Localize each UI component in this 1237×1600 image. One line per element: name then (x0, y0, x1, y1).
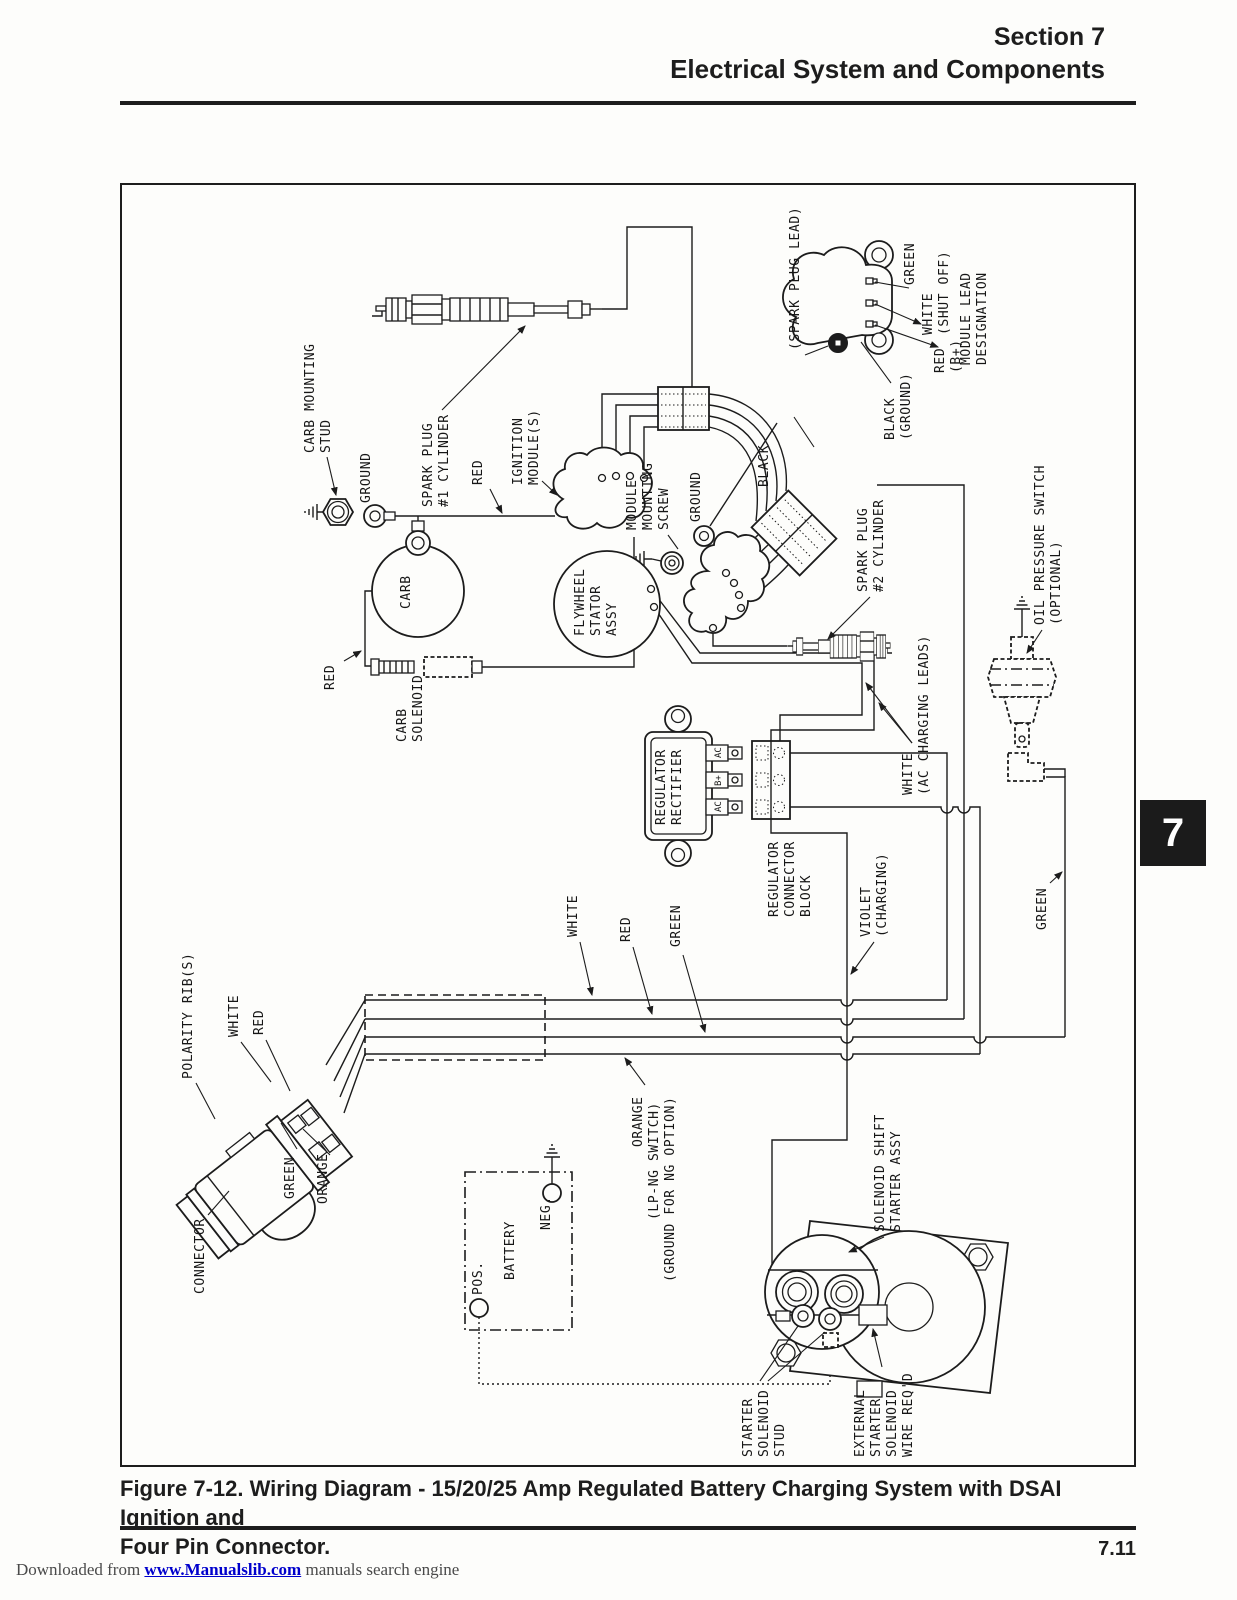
label-orange-conn: ORANGE (316, 1153, 331, 1204)
label-terminal-ac-bottom: AC (714, 801, 724, 812)
ground-ring-terminal-left (364, 505, 395, 527)
carb-solenoid (371, 657, 482, 677)
label-green-conn: GREEN (283, 1157, 298, 1199)
chapter-tab: 7 (1140, 800, 1206, 866)
label-carb-solenoid: CARB (395, 708, 410, 742)
label-flywheel-stator: FLYWHEEL (573, 569, 588, 636)
label-solenoid-shift2: STARTER ASSY (889, 1131, 904, 1232)
label-module-lead-designation: MODULE LEAD (959, 272, 974, 365)
label-module-mounting-screw: MODULE (625, 479, 640, 530)
label-carb: CARB (399, 575, 414, 609)
harness-dashed-box (365, 995, 545, 1060)
label-carb-mounting-stud: CARB MOUNTING (303, 343, 318, 453)
label-red-left: RED (323, 665, 338, 690)
label-battery-neg: NEG. (539, 1196, 554, 1230)
label-spark-plug-1b: #1 CYLINDER (437, 414, 452, 507)
label-module-black: BLACK (883, 398, 898, 440)
label-spark-plug-lead: (SPARK PLUG LEAD) (788, 207, 803, 350)
page-header: Section 7 Electrical System and Componen… (120, 22, 1135, 86)
label-battery: BATTERY (503, 1221, 518, 1280)
label-oil-pressure-switch: OIL PRESSURE SWITCH (1033, 465, 1048, 625)
label-starter-solenoid-stud3: STUD (773, 1423, 788, 1457)
label-external-starter3: SOLENOID (885, 1390, 900, 1457)
figure-frame: (SPARK PLUG LEAD) GREEN WHITE (SHUT OFF)… (120, 183, 1136, 1467)
label-ground-mid: GROUND (689, 471, 704, 522)
page-number: 7.11 (120, 1538, 1136, 1561)
label-ground-left: GROUND (359, 452, 374, 503)
label-ignition-modules: IGNITION (511, 418, 526, 485)
footer-prefix: Downloaded from (16, 1560, 144, 1579)
label-carb-solenoid2: SOLENOID (411, 675, 426, 742)
ground-ring-terminal-mid (694, 526, 714, 546)
header-rule (120, 101, 1136, 105)
label-red-top: RED (471, 460, 486, 485)
label-terminal-ac-top: AC (714, 747, 724, 758)
label-violet-charging: VIOLET (859, 886, 874, 937)
label-regulator-connector-block2: CONNECTOR (783, 841, 798, 917)
label-white-mid: WHITE (566, 895, 581, 937)
label-white-ac-charging2: (AC CHARGING LEADS) (917, 635, 932, 795)
wiring-diagram: (SPARK PLUG LEAD) GREEN WHITE (SHUT OFF)… (122, 185, 1134, 1465)
label-battery-pos: POS. (471, 1261, 486, 1295)
figure-caption-line1: Figure 7-12. Wiring Diagram - 15/20/25 A… (120, 1474, 1136, 1532)
label-module-black2: (GROUND) (899, 373, 914, 440)
label-flywheel-stator3: ASSY (605, 602, 620, 636)
spark-plug-2 (787, 632, 892, 661)
label-orange-lpng2: (LP-NG SWITCH) (647, 1102, 662, 1220)
caption-rule (120, 1526, 1136, 1530)
label-external-starter2: STARTER (869, 1398, 884, 1457)
label-orange-lpng3: (GROUND FOR NG OPTION) (663, 1097, 678, 1282)
battery (465, 1145, 572, 1330)
section-heading: Section 7 (120, 22, 1135, 52)
carb-mounting-stud (305, 499, 353, 525)
label-green-right: GREEN (1035, 888, 1050, 930)
label-terminal-b-plus: B+ (714, 775, 724, 786)
section-title: Electrical System and Components (120, 52, 1135, 86)
footer-suffix: manuals search engine (301, 1560, 459, 1579)
label-module-green: GREEN (903, 243, 918, 285)
manual-page: Section 7 Electrical System and Componen… (0, 0, 1237, 1600)
label-starter-solenoid-stud2: SOLENOID (757, 1390, 772, 1457)
label-violet-charging2: (CHARGING) (875, 853, 890, 937)
label-ignition-modules2: MODULE(S) (527, 409, 542, 485)
label-polarity-ribs: POLARITY RIB(S) (181, 953, 196, 1079)
label-module-mounting-screw2: MOUNTING (641, 463, 656, 530)
battery-pos-terminal (470, 1299, 488, 1317)
label-regulator-rectifier: REGULATOR (654, 749, 669, 825)
label-regulator-connector-block3: BLOCK (799, 875, 814, 917)
label-external-starter4: WIRE REQ'D (901, 1373, 916, 1457)
label-module-white: WHITE (921, 293, 936, 335)
external-solenoid-terminal (859, 1305, 887, 1325)
label-connector: CONNECTOR (193, 1218, 208, 1294)
label-orange-lpng: ORANGE (631, 1096, 646, 1147)
label-module-lead-designation2: DESIGNATION (975, 272, 990, 365)
label-black-mid: BLACK (757, 445, 772, 487)
carb (372, 521, 464, 637)
label-red-mid: RED (619, 917, 634, 942)
label-white-ac-charging: WHITE (901, 753, 916, 795)
manualslib-link[interactable]: www.Manualslib.com (144, 1560, 301, 1579)
connector-block-1 (658, 387, 709, 430)
label-oil-pressure-switch2: (OPTIONAL) (1049, 541, 1064, 625)
label-starter-solenoid-stud: STARTER (741, 1398, 756, 1457)
label-module-red: RED (933, 348, 948, 373)
label-carb-mounting-stud2: STUD (319, 419, 334, 453)
label-module-white2: (SHUT OFF) (937, 251, 952, 335)
label-module-mounting-screw3: SCREW (657, 488, 672, 530)
label-regulator-rectifier2: RECTIFIER (670, 749, 685, 825)
label-red-conn: RED (252, 1010, 267, 1035)
regulator-connector-block (752, 741, 790, 819)
label-spark-plug-2b: #2 CYLINDER (872, 499, 887, 592)
label-spark-plug-2: SPARK PLUG (856, 508, 871, 592)
starter-assembly (765, 1221, 1008, 1397)
label-white-conn: WHITE (227, 995, 242, 1037)
ignition-module-2 (684, 532, 769, 633)
label-green-mid: GREEN (669, 905, 684, 947)
regulator-terminals (706, 745, 742, 815)
label-solenoid-shift: SOLENOID SHIFT (873, 1114, 888, 1232)
label-regulator-connector-block: REGULATOR (767, 841, 782, 917)
footer: Downloaded from www.Manualslib.com manua… (16, 1560, 459, 1580)
label-flywheel-stator2: STATOR (589, 585, 604, 636)
spark-plug-1 (372, 295, 602, 324)
label-spark-plug-1: SPARK PLUG (421, 423, 436, 507)
label-external-starter: EXTERNAL (853, 1390, 868, 1457)
